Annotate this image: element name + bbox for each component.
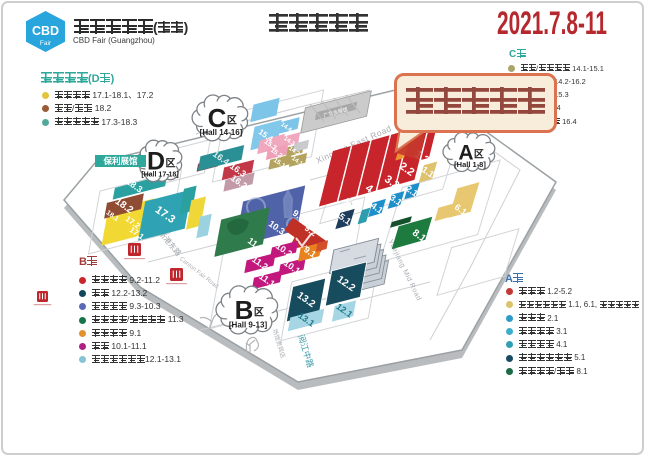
svg-text:Fair: Fair [40,40,52,47]
svg-text:区: 区 [166,158,176,170]
svg-text:区: 区 [474,149,484,161]
svg-text:区: 区 [254,307,264,319]
svg-text:[Hall 9-13]: [Hall 9-13] [229,321,268,330]
svg-text:CBD: CBD [32,24,59,38]
svg-text:[Hall 14-16]: [Hall 14-16] [200,128,243,137]
svg-text:区: 区 [227,115,237,127]
svg-text:保利展馆: 保利展馆 [102,156,138,166]
svg-text:[Hall 1-8]: [Hall 1-8] [454,160,486,169]
svg-text:[Hall 17-18]: [Hall 17-18] [141,171,178,178]
